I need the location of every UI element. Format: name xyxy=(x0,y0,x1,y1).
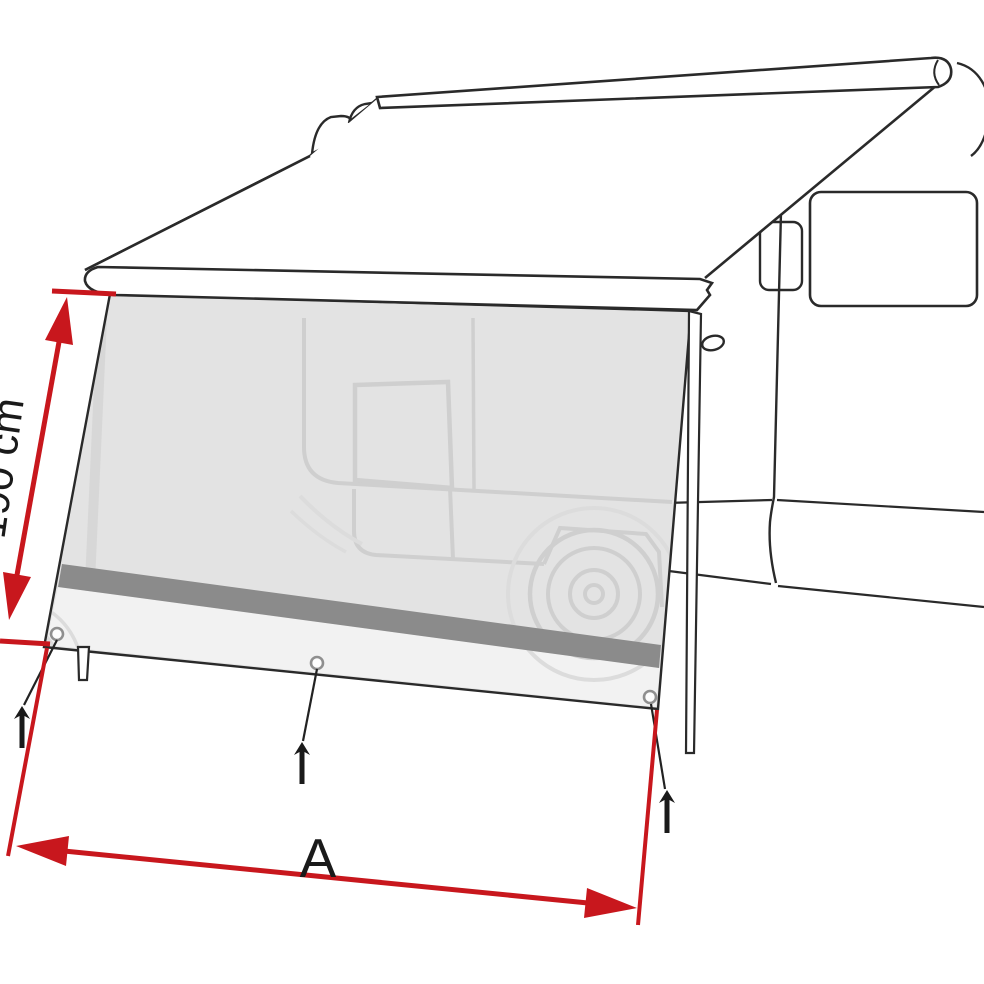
support-leg-left-foot xyxy=(78,647,89,680)
ghost-rear-edge-line xyxy=(473,318,474,491)
dimension-height-tick-top xyxy=(52,291,116,294)
side-window xyxy=(810,192,977,306)
grommet-middle xyxy=(311,657,323,669)
grommet-left xyxy=(51,628,63,640)
diagram-svg: 190 cm A xyxy=(0,0,984,984)
dimension-height-tick-bottom xyxy=(0,641,50,644)
dimension-width-label: A xyxy=(300,827,337,889)
awning-diagram: 190 cm A xyxy=(0,0,984,984)
grommet-right xyxy=(644,691,656,703)
